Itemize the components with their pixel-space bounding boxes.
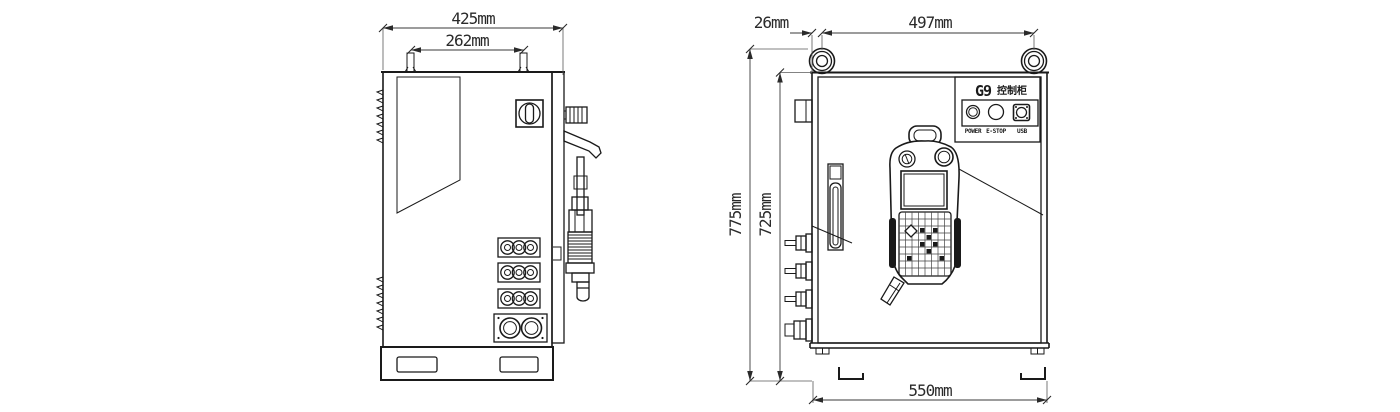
rotary-switch [516,100,543,127]
usb-label: USB [1017,128,1028,135]
side-base [381,347,553,380]
pendant-keypad [899,212,951,276]
side-plug-top [795,100,812,122]
cable-gland-4 [785,319,812,341]
pendant-profile [553,107,601,301]
pendant-grip-left [889,218,896,268]
power-label: POWER [965,128,982,135]
cable-gland-2 [785,262,812,280]
dimension-eye-spacing: 497mm [822,13,1038,50]
drawing-canvas: 425mm 262mm [0,0,1400,412]
hanger-tab [574,176,587,189]
dim-text-725: 725mm [756,193,775,237]
side-view [377,53,601,380]
foot-rail-left [839,367,863,379]
pendant-cable-boot [577,282,589,301]
dim-text-425: 425mm [451,9,495,28]
hinge-knuckles-bottom [377,277,383,330]
estop-label: E-STOP [986,128,1007,135]
pendant-cable [881,277,904,305]
estop-button [989,105,1004,120]
cabinet-drawing: 425mm 262mm [0,0,1400,412]
side-door-slab [552,72,564,343]
dimension-cabinet-height: 725mm [756,69,812,386]
usb-port [1014,105,1030,121]
side-vent-panel [397,77,460,213]
pendant-hook [564,131,601,158]
pendant-key-switch [899,151,915,167]
control-panel: G9 控制柜 POWER E-STOP USB [955,77,1040,142]
lifting-lug-left [405,53,416,72]
dim-text-775: 775mm [726,193,745,237]
dim-text-550: 550mm [908,381,952,400]
pendant-body-profile [566,197,594,301]
hinge-knuckles-top [377,90,383,143]
door-handle [828,164,843,250]
teach-pendant [881,126,961,305]
pendant-grip-right [954,218,961,268]
door-clip [553,247,561,260]
front-base [810,343,1049,379]
gland-plate-1 [498,238,540,257]
dimension-lug-spacing: 262mm [407,31,528,54]
power-connector-plate [494,314,547,342]
foot-rail-right [1021,367,1045,379]
cable-gland-1 [785,234,812,252]
lifting-lug-right [518,53,529,72]
model-label: G9 [975,82,992,100]
dim-text-262: 262mm [445,31,489,50]
dim-text-497: 497mm [908,13,952,32]
power-button [967,106,980,119]
model-label-cjk: 控制柜 [997,84,1027,97]
gland-plate-3 [498,289,540,308]
lifting-eye-right [1022,49,1047,74]
pendant-plug-profile [564,107,587,123]
cable-gland-3 [785,290,812,308]
crease-right [948,163,1043,215]
front-view: G9 控制柜 POWER E-STOP USB [785,49,1049,380]
pendant-screen [901,171,947,209]
pendant-estop [935,148,953,166]
dim-text-26: 26mm [754,13,789,32]
lifting-eye-left [810,49,835,74]
gland-plate-2 [498,263,540,282]
pendant-hanger-bar [577,157,584,215]
dimension-base-width: 550mm [809,381,1051,404]
